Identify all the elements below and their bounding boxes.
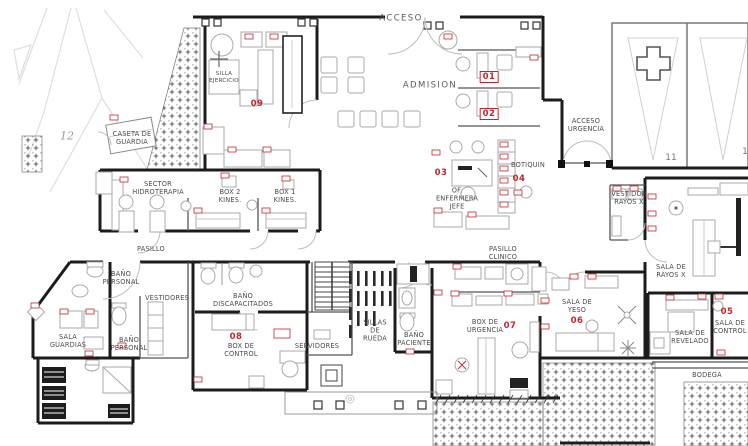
room-label-acceso-urgencia: ACCESO URGENCIA bbox=[568, 117, 604, 133]
room-label-box1-kines: BOX 1 KINES. bbox=[274, 188, 297, 204]
lot-number-edge: 1 bbox=[742, 147, 748, 157]
room-number-02: 02 bbox=[480, 108, 499, 120]
room-label-sala-guardias: SALA GUARDIAS bbox=[50, 333, 86, 349]
room-label-bodega: BODEGA bbox=[692, 371, 722, 379]
room-label-box-de-control: BOX DE CONTROL bbox=[224, 342, 258, 358]
door-posts bbox=[558, 160, 613, 168]
room-label-caseta-guardia: CASETA DE GUARDIA bbox=[113, 130, 152, 146]
room-label-bano-paciente: BAÑO PACIENTE bbox=[397, 331, 430, 347]
room-label-servidores: SERVIDORES bbox=[295, 342, 339, 350]
room-label-box-de-urgencia: BOX DE URGENCIA bbox=[467, 318, 503, 334]
room-number-01: 01 bbox=[480, 71, 499, 83]
urgency-ramp-block bbox=[612, 23, 748, 168]
room-label-sector-hidroterapia: SECTOR HIDROTERAPIA bbox=[132, 180, 184, 196]
room-label-sala-de-yeso: SALA DE YESO bbox=[562, 298, 592, 314]
room-label-bano-personal-norte: BAÑO PERSONAL bbox=[103, 270, 140, 286]
room-label-admision: ADMISION bbox=[403, 81, 457, 92]
equipment-label-silla-ejercicio: SILLA EJERCICIO bbox=[209, 71, 239, 85]
plan-svg bbox=[0, 0, 748, 446]
room-label-box2-kines: BOX 2 KINES. bbox=[219, 188, 242, 204]
room-label-pasillo-clinico: PASILLO CLINICO bbox=[489, 245, 517, 261]
room-number-03: 03 bbox=[435, 168, 448, 178]
room-label-pasillo: PASILLO bbox=[137, 245, 165, 253]
room-label-bano-discapacitados: BAÑO DISCAPACITADOS bbox=[213, 292, 273, 308]
room-label-sillas-de-rueda: SILLAS DE RUEDA bbox=[363, 319, 387, 344]
room-label-of-enfermera-jefe: OF. ENFERMERA JEFE bbox=[436, 187, 478, 212]
room-number-09: 09 bbox=[251, 99, 264, 109]
room-number-06: 06 bbox=[571, 316, 584, 326]
lot-number-11: 11 bbox=[665, 153, 676, 163]
staircase bbox=[315, 262, 350, 386]
room-label-vestidor-rayos-x: VESTIDOR RAYOS X bbox=[611, 190, 646, 206]
room-number-08: 08 bbox=[230, 332, 243, 342]
room-label-sala-de-rayos-x: SALA DE RAYOS X bbox=[656, 263, 686, 279]
room-number-04: 04 bbox=[513, 174, 526, 184]
lot-number-12: 12 bbox=[60, 130, 74, 143]
room-label-sala-de-control: SALA DE CONTROL bbox=[713, 319, 747, 335]
floor-plan-canvas: ACCESO ADMISION ACCESO URGENCIA CASETA D… bbox=[0, 0, 748, 446]
room-number-07: 07 bbox=[504, 321, 517, 331]
room-label-bano-personal-sur: BAÑO PERSONAL bbox=[111, 336, 148, 352]
room-label-vestidores: VESTIDORES bbox=[145, 294, 189, 302]
room-label-botiquin: BOTIQUIN bbox=[511, 161, 545, 169]
room-label-sala-de-revelado: SALA DE REVELADO bbox=[671, 329, 709, 345]
room-label-acceso: ACCESO bbox=[379, 14, 422, 25]
room-number-05: 05 bbox=[721, 307, 734, 317]
